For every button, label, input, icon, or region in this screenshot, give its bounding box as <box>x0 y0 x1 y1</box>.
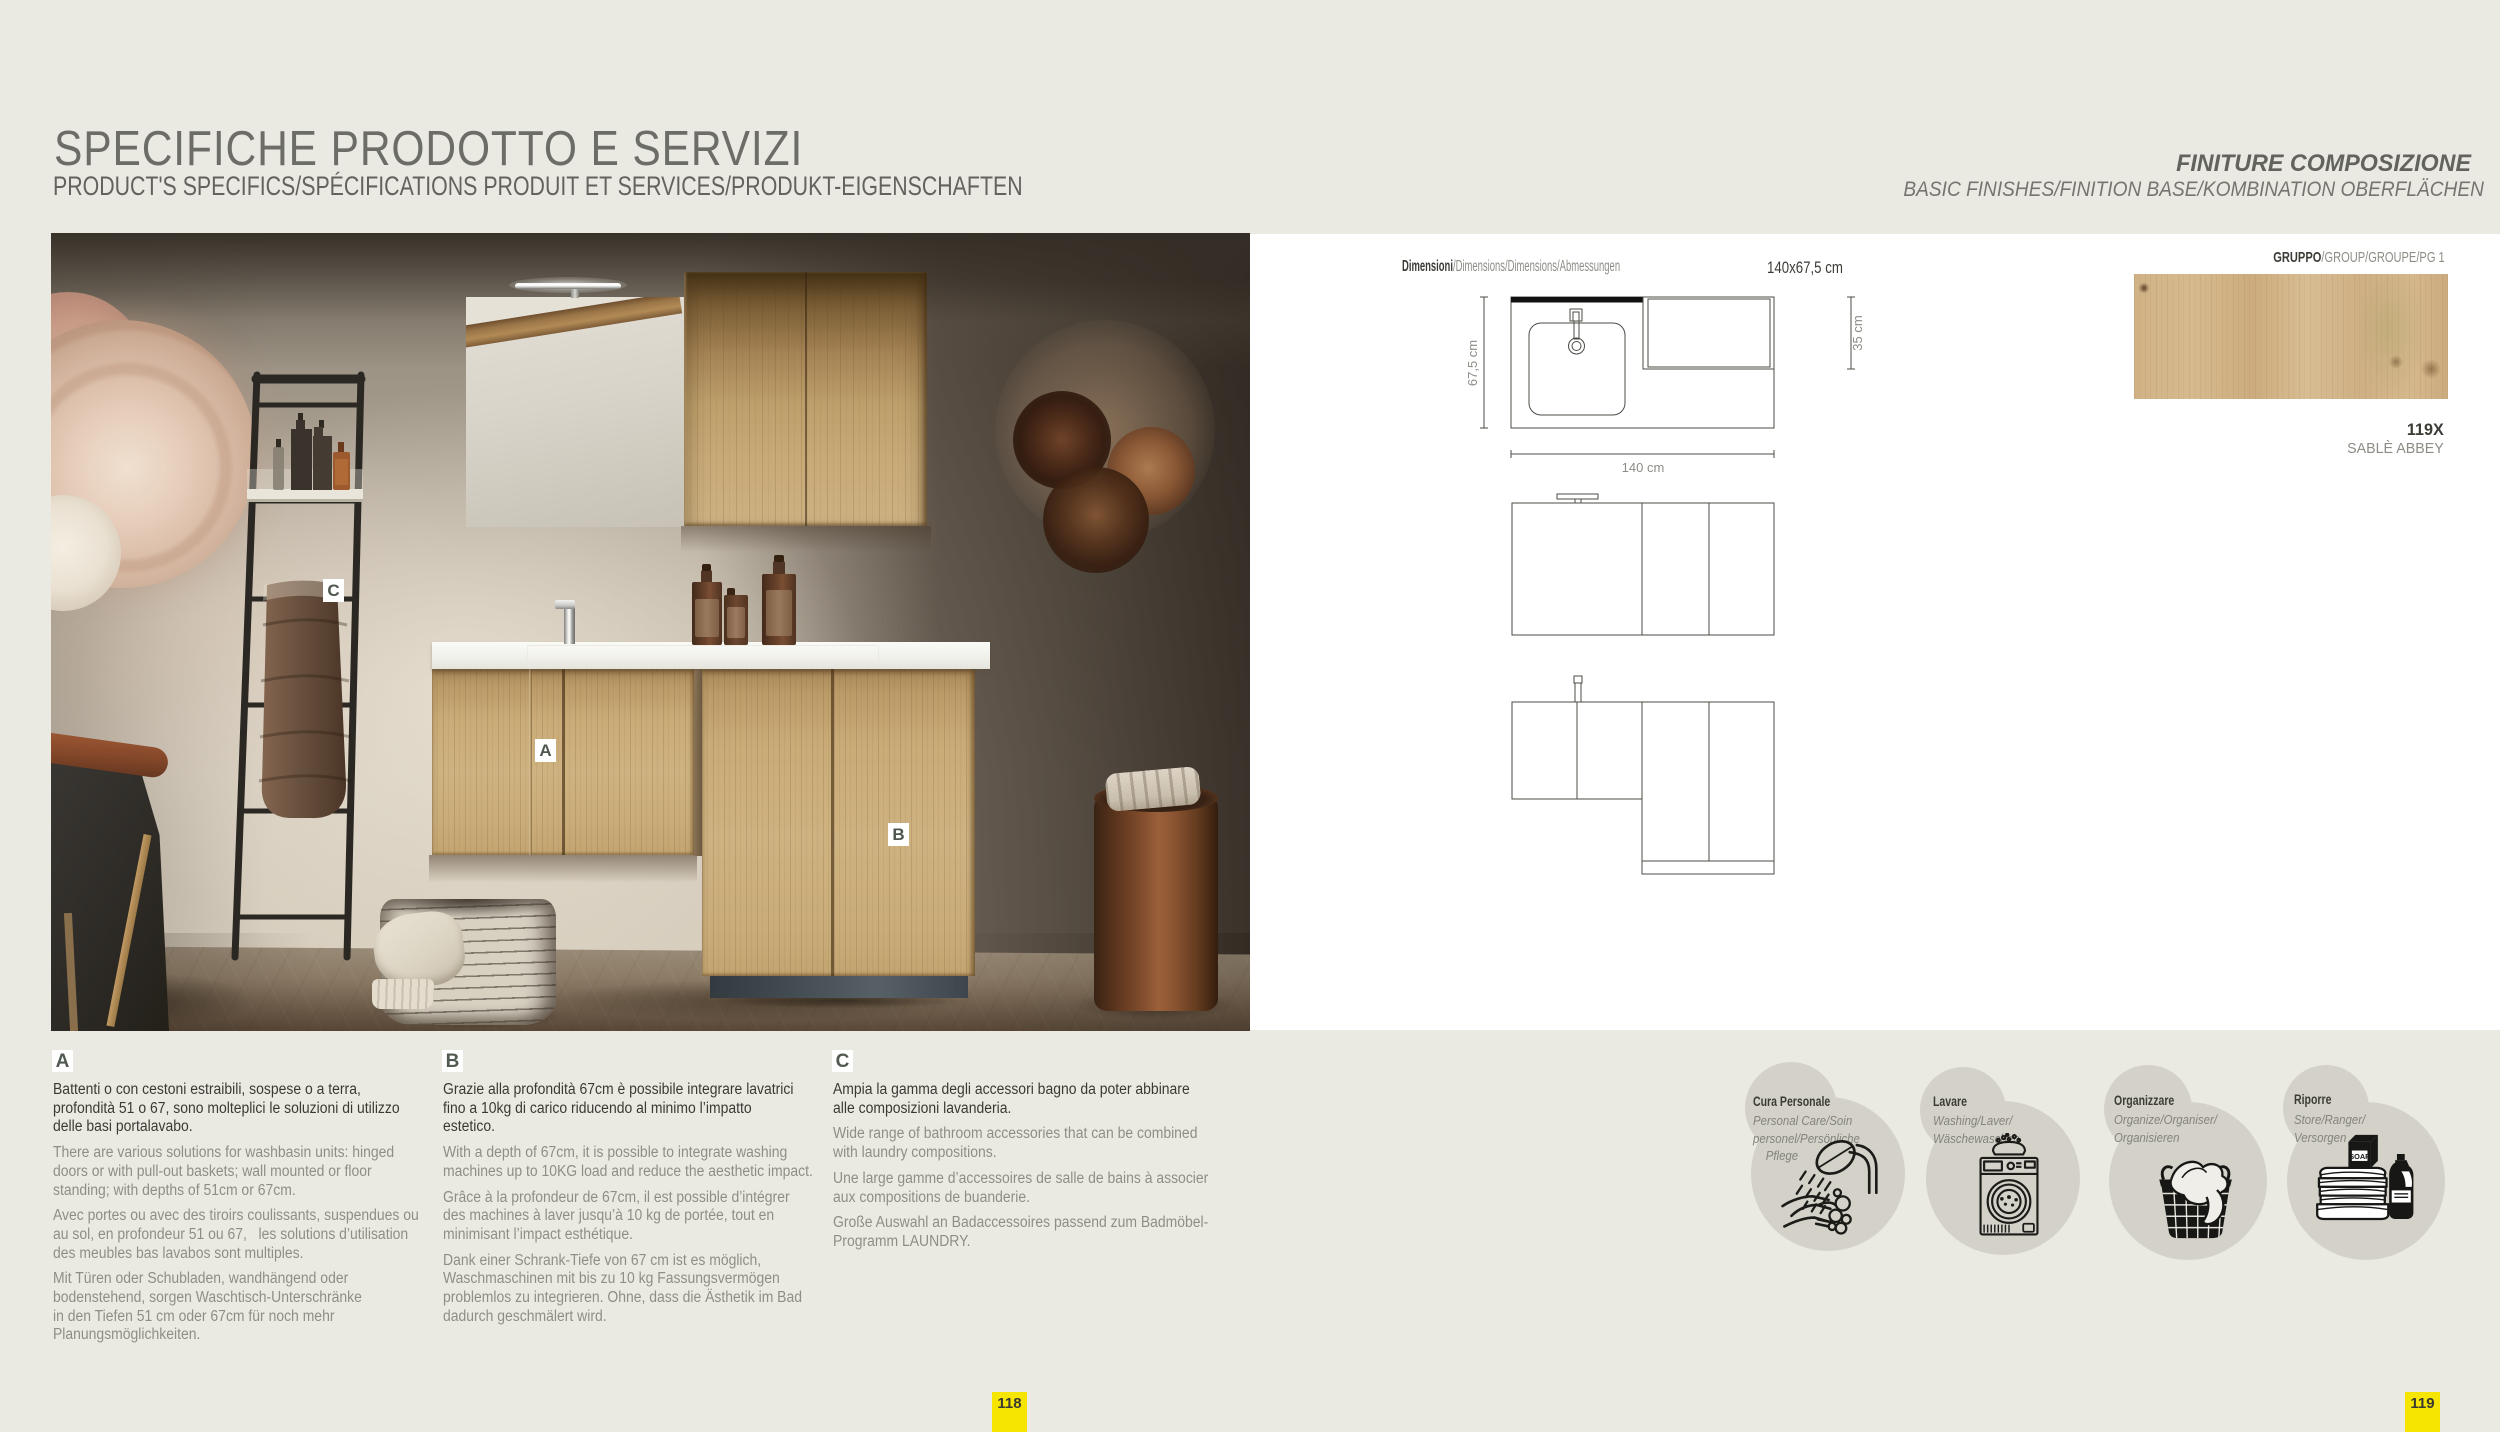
svg-text:35 cm: 35 cm <box>1850 315 1865 350</box>
svg-text:67,5 cm: 67,5 cm <box>1465 340 1480 386</box>
svg-text:SOAP: SOAP <box>2349 1152 2370 1161</box>
svg-text:140 cm: 140 cm <box>1622 460 1665 475</box>
